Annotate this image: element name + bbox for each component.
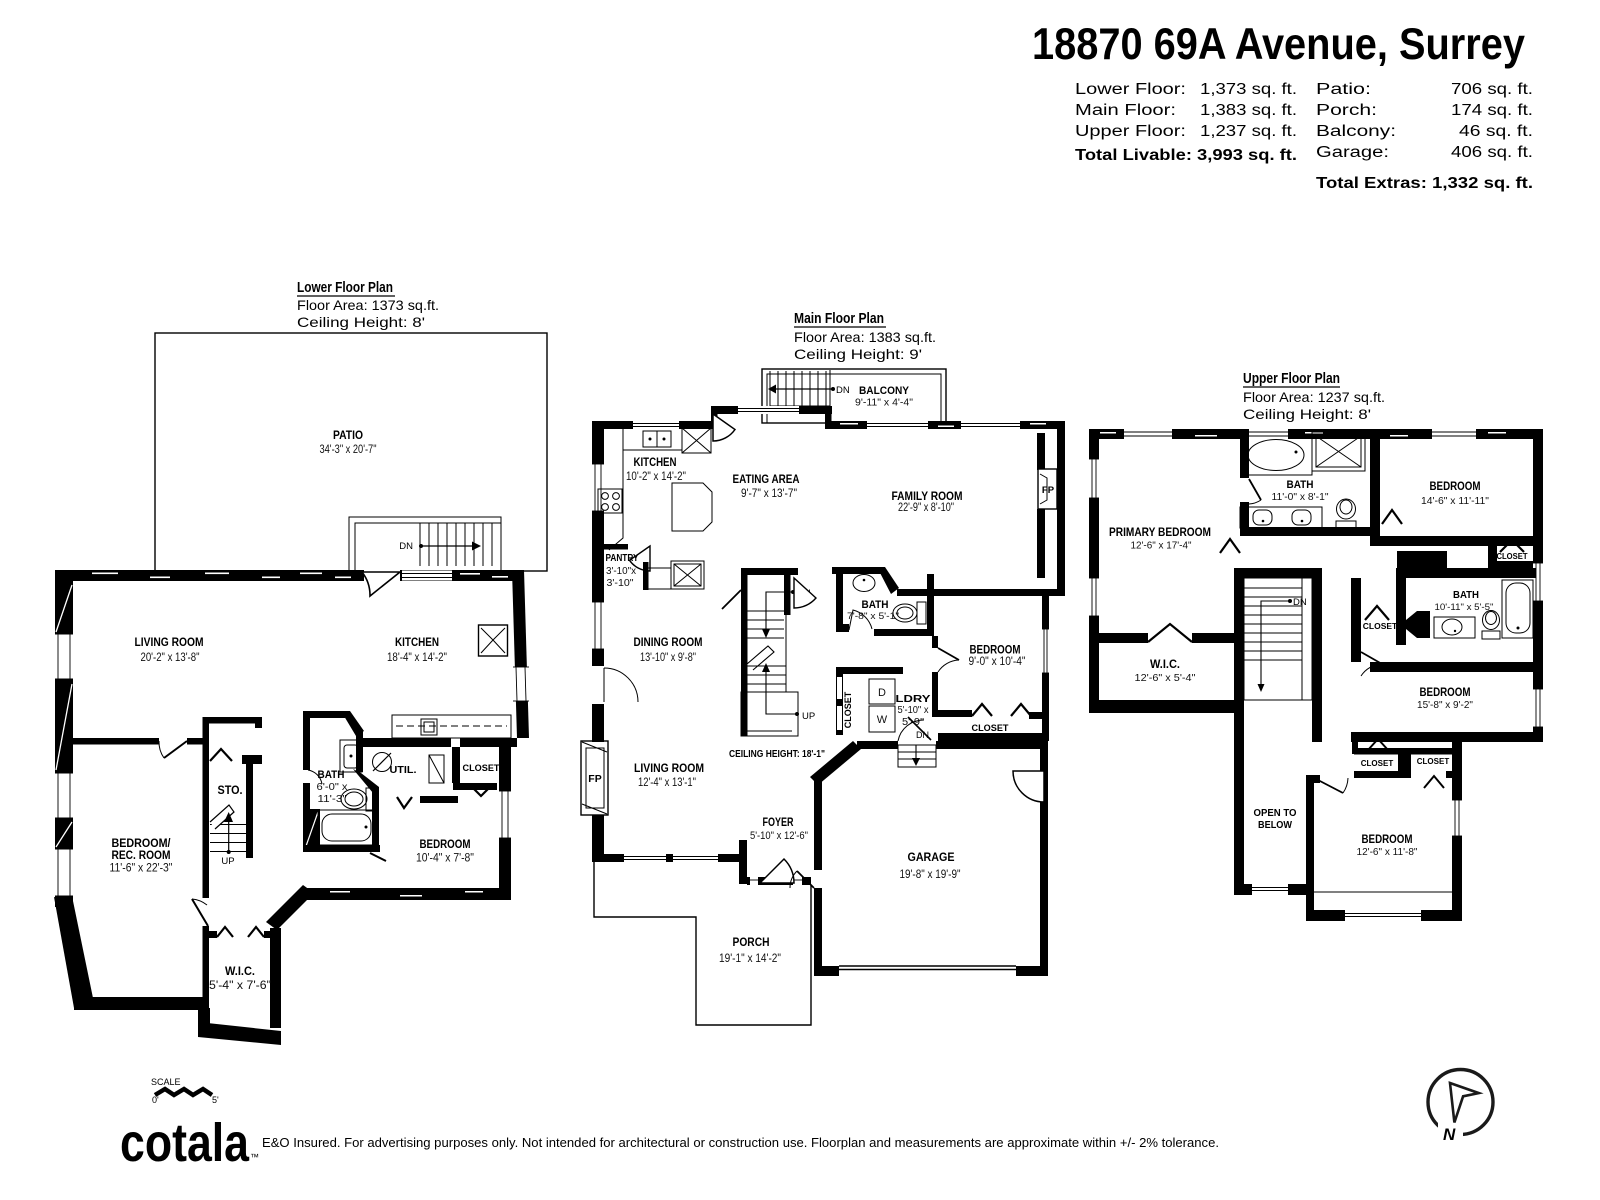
svg-text:DN: DN	[399, 541, 413, 552]
svg-text:DN: DN	[1293, 597, 1307, 608]
svg-text:Porch:: Porch:	[1316, 102, 1377, 119]
svg-text:BEDROOM: BEDROOM	[1430, 481, 1481, 493]
svg-text:UP: UP	[221, 856, 234, 867]
svg-text:LIVING ROOM: LIVING ROOM	[135, 635, 204, 649]
svg-text:13'-10" x 9'-8": 13'-10" x 9'-8"	[640, 652, 696, 664]
svg-text:N: N	[1443, 1125, 1456, 1144]
svg-text:LDRY: LDRY	[896, 693, 931, 705]
svg-text:KITCHEN: KITCHEN	[395, 635, 439, 649]
svg-text:SCALE: SCALE	[151, 1077, 181, 1087]
svg-text:™: ™	[250, 1152, 259, 1162]
svg-text:Lower Floor:: Lower Floor:	[1075, 81, 1186, 98]
svg-text:10'-4" x 7'-8": 10'-4" x 7'-8"	[416, 851, 474, 865]
svg-text:UTIL.: UTIL.	[390, 764, 417, 776]
svg-text:BATH: BATH	[862, 599, 889, 611]
svg-text:CLOSET: CLOSET	[1361, 759, 1394, 768]
svg-text:CLOSET: CLOSET	[1363, 621, 1398, 631]
svg-text:BALCONY: BALCONY	[859, 385, 910, 397]
svg-text:1,373 sq. ft.: 1,373 sq. ft.	[1200, 81, 1297, 98]
svg-text:KITCHEN: KITCHEN	[634, 457, 677, 469]
svg-text:W.I.C.: W.I.C.	[1150, 659, 1180, 671]
svg-text:BEDROOM/: BEDROOM/	[112, 838, 172, 850]
svg-text:20'-2" x 13'-8": 20'-2" x 13'-8"	[141, 650, 200, 664]
svg-text:EATING AREA: EATING AREA	[733, 474, 800, 486]
svg-text:9'-11" x 4'-4": 9'-11" x 4'-4"	[855, 397, 913, 409]
svg-text:Total Livable: 3,993 sq. ft.: Total Livable: 3,993 sq. ft.	[1075, 147, 1297, 164]
svg-text:Balcony:: Balcony:	[1316, 123, 1396, 140]
svg-text:6'-0" x: 6'-0" x	[317, 781, 349, 793]
svg-text:DN: DN	[916, 730, 929, 740]
svg-text:18'-4" x 14'-2": 18'-4" x 14'-2"	[387, 650, 447, 664]
svg-text:12'-6" x 17'-4": 12'-6" x 17'-4"	[1131, 540, 1192, 552]
svg-text:STO.: STO.	[218, 785, 243, 797]
svg-text:1,237 sq. ft.: 1,237 sq. ft.	[1200, 123, 1297, 140]
svg-text:FP: FP	[588, 773, 601, 785]
svg-text:BATH: BATH	[1453, 589, 1479, 601]
svg-text:FP: FP	[1042, 485, 1055, 496]
svg-text:GARAGE: GARAGE	[908, 850, 955, 864]
svg-text:0': 0'	[152, 1095, 159, 1105]
svg-text:5'-10" x 12'-6": 5'-10" x 12'-6"	[750, 830, 808, 842]
svg-text:Floor Area: 1237 sq.ft.: Floor Area: 1237 sq.ft.	[1243, 389, 1385, 405]
svg-text:CLOSET: CLOSET	[1497, 552, 1528, 561]
svg-text:Main Floor:: Main Floor:	[1075, 102, 1176, 119]
svg-text:406 sq. ft.: 406 sq. ft.	[1451, 144, 1533, 161]
svg-text:LIVING ROOM: LIVING ROOM	[634, 763, 704, 775]
svg-text:5': 5'	[212, 1095, 219, 1105]
svg-text:Upper Floor:: Upper Floor:	[1075, 123, 1186, 140]
svg-text:34'-3" x 20'-7": 34'-3" x 20'-7"	[320, 442, 377, 456]
svg-text:Patio:: Patio:	[1316, 81, 1371, 98]
svg-text:PATIO: PATIO	[333, 428, 363, 442]
svg-text:Ceiling Height: 9': Ceiling Height: 9'	[794, 346, 922, 362]
svg-text:Floor Area: 1383 sq.ft.: Floor Area: 1383 sq.ft.	[794, 329, 936, 345]
svg-text:Garage:: Garage:	[1316, 144, 1389, 161]
svg-text:Lower Floor Plan: Lower Floor Plan	[297, 279, 393, 296]
svg-text:cotala: cotala	[120, 1113, 250, 1173]
svg-text:REC. ROOM: REC. ROOM	[112, 850, 171, 862]
svg-text:9'-7" x 13'-7": 9'-7" x 13'-7"	[741, 488, 797, 500]
svg-text:OPEN TO: OPEN TO	[1254, 808, 1297, 819]
svg-text:11'-0" x 8'-1": 11'-0" x 8'-1"	[1272, 492, 1329, 503]
svg-text:FOYER: FOYER	[763, 817, 795, 829]
svg-text:46 sq. ft.: 46 sq. ft.	[1459, 123, 1533, 140]
svg-text:Upper Floor Plan: Upper Floor Plan	[1243, 370, 1340, 387]
svg-text:19'-8" x 19'-9": 19'-8" x 19'-9"	[900, 867, 961, 881]
svg-text:10'-11" x 5'-5": 10'-11" x 5'-5"	[1435, 602, 1494, 613]
svg-text:3'-10"x: 3'-10"x	[606, 565, 637, 577]
svg-text:Ceiling Height: 8': Ceiling Height: 8'	[297, 314, 425, 330]
svg-text:706 sq. ft.: 706 sq. ft.	[1451, 81, 1533, 98]
svg-text:12'-4" x 13'-1": 12'-4" x 13'-1"	[638, 777, 696, 789]
svg-text:Total Extras: 1,332 sq. ft.: Total Extras: 1,332 sq. ft.	[1316, 175, 1533, 192]
svg-text:12'-6" x 5'-4": 12'-6" x 5'-4"	[1135, 672, 1196, 684]
svg-text:W: W	[877, 714, 888, 726]
svg-text:BATH: BATH	[1287, 479, 1314, 491]
svg-text:10'-2" x 14'-2": 10'-2" x 14'-2"	[626, 471, 686, 483]
svg-text:PRIMARY BEDROOM: PRIMARY BEDROOM	[1109, 527, 1211, 539]
svg-text:174 sq. ft.: 174 sq. ft.	[1451, 102, 1533, 119]
svg-text:W.I.C.: W.I.C.	[225, 966, 255, 978]
svg-text:9'-0" x 10'-4": 9'-0" x 10'-4"	[969, 656, 1026, 668]
svg-text:19'-1" x 14'-2": 19'-1" x 14'-2"	[719, 953, 781, 965]
svg-text:UP: UP	[802, 711, 815, 722]
svg-text:DINING ROOM: DINING ROOM	[634, 637, 703, 649]
svg-text:BELOW: BELOW	[1258, 820, 1293, 831]
svg-text:5'-10" x: 5'-10" x	[898, 705, 929, 716]
svg-text:3'-10": 3'-10"	[607, 577, 634, 589]
svg-text:BEDROOM: BEDROOM	[1362, 834, 1413, 846]
svg-text:BEDROOM: BEDROOM	[970, 645, 1021, 657]
svg-text:Floor Area: 1373 sq.ft.: Floor Area: 1373 sq.ft.	[297, 297, 439, 313]
svg-text:CLOSET: CLOSET	[843, 691, 853, 728]
svg-text:7'-8" x 5'-1": 7'-8" x 5'-1"	[847, 611, 899, 622]
svg-text:D: D	[878, 687, 886, 699]
svg-text:DN: DN	[836, 385, 850, 396]
svg-text:15'-8" x 9'-2": 15'-8" x 9'-2"	[1417, 699, 1473, 711]
svg-text:CLOSET: CLOSET	[972, 723, 1009, 733]
svg-text:BEDROOM: BEDROOM	[420, 839, 471, 851]
svg-text:CEILING HEIGHT: 18'-1": CEILING HEIGHT: 18'-1"	[729, 748, 825, 760]
svg-text:18870 69A Avenue, Surrey: 18870 69A Avenue, Surrey	[1032, 20, 1525, 69]
svg-text:PORCH: PORCH	[733, 935, 770, 949]
svg-text:CLOSET: CLOSET	[463, 763, 500, 774]
svg-text:14'-6" x 11'-11": 14'-6" x 11'-11"	[1421, 495, 1489, 507]
svg-text:Main Floor Plan: Main Floor Plan	[794, 310, 884, 327]
svg-text:12'-6" x 11'-8": 12'-6" x 11'-8"	[1357, 846, 1418, 858]
svg-text:1,383 sq. ft.: 1,383 sq. ft.	[1200, 102, 1297, 119]
svg-text:5'-4" x 7'-6": 5'-4" x 7'-6"	[209, 980, 271, 992]
svg-text:Ceiling Height: 8': Ceiling Height: 8'	[1243, 406, 1371, 422]
svg-text:CLOSET: CLOSET	[1417, 757, 1450, 766]
svg-text:BEDROOM: BEDROOM	[1420, 687, 1471, 699]
svg-text:PANTRY: PANTRY	[606, 552, 639, 564]
svg-text:11'-6" x 22'-3": 11'-6" x 22'-3"	[110, 863, 173, 875]
svg-text:E&O Insured. For advertising p: E&O Insured. For advertising purposes on…	[262, 1135, 1219, 1150]
svg-text:22'-9" x 8'-10": 22'-9" x 8'-10"	[898, 502, 954, 514]
